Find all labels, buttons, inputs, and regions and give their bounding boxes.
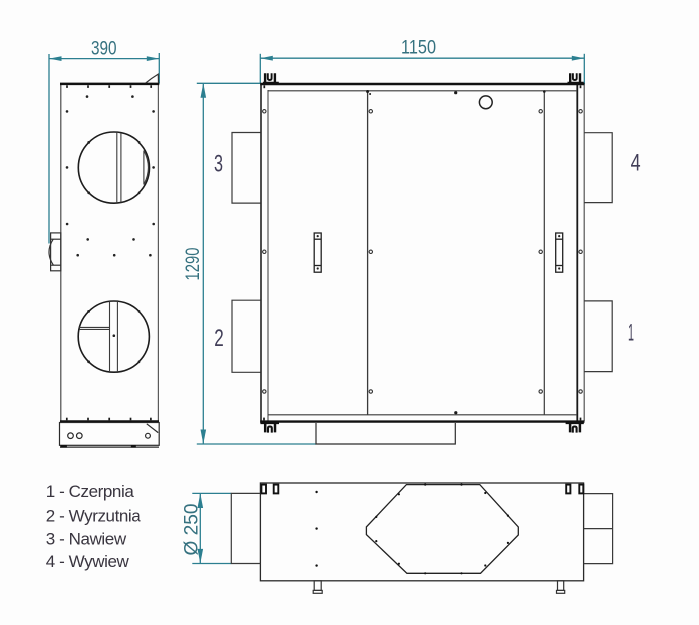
svg-text:3 - Nawiew: 3 - Nawiew <box>46 529 127 548</box>
svg-text:1: 1 <box>628 319 634 346</box>
svg-text:3: 3 <box>214 151 223 178</box>
svg-text:Ø 250: Ø 250 <box>181 503 203 555</box>
svg-text:390: 390 <box>91 37 117 59</box>
svg-text:1290: 1290 <box>182 247 204 280</box>
svg-text:1 - Czerpnia: 1 - Czerpnia <box>46 482 135 501</box>
svg-text:1150: 1150 <box>401 37 436 59</box>
svg-text:4: 4 <box>631 150 641 177</box>
svg-text:2: 2 <box>214 325 224 352</box>
svg-text:2 - Wyrzutnia: 2 - Wyrzutnia <box>46 506 141 525</box>
svg-text:4 - Wywiew: 4 - Wywiew <box>46 552 130 571</box>
